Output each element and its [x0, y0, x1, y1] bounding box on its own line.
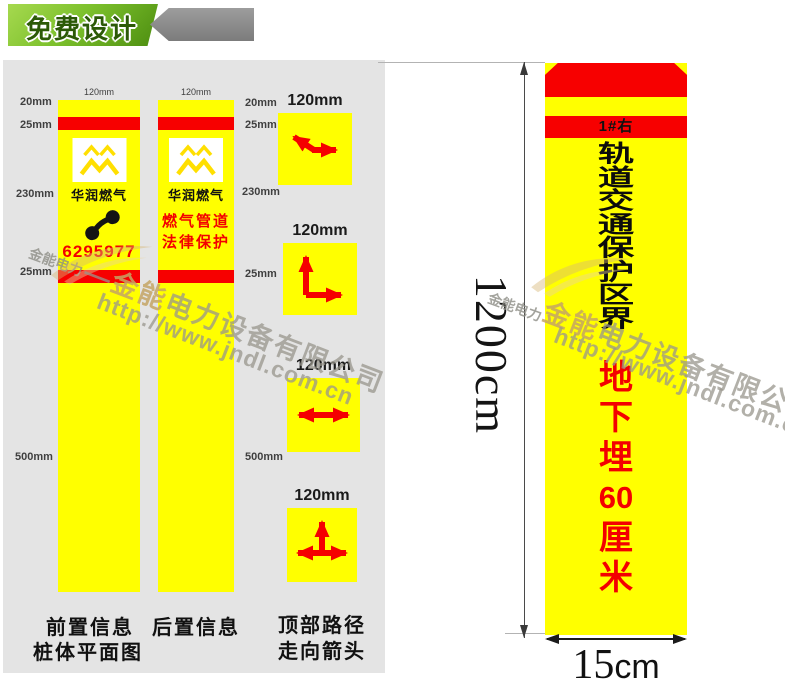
pillar-black-text: 轨 道 交 通 保 护 区 界: [545, 143, 687, 331]
back-post-diagram: 华润燃气 燃气管道 法律保护: [158, 100, 234, 592]
t-shape-arrow-icon: [287, 508, 357, 582]
dimension-arrow-down: [520, 625, 528, 638]
gas-logo: [169, 138, 223, 187]
arrow-tile-bend: [278, 113, 352, 185]
front-post-red-band-bottom: [58, 270, 140, 283]
width-number: 15: [572, 642, 614, 684]
back-post-red-line-1: 燃气管道: [158, 210, 234, 231]
pillar-width-label: 15cm: [545, 641, 687, 684]
dim-right-20mm: 20mm: [245, 97, 277, 109]
pillar-red-text: 地 下 埋 60 厘 米: [545, 358, 687, 598]
dim-right-500mm: 500mm: [245, 451, 283, 463]
dim-left-500mm: 500mm: [15, 451, 53, 463]
left-right-arrow-icon: [287, 378, 360, 452]
dim-right-25mm-top: 25mm: [245, 119, 277, 131]
bend-arrow-icon: [278, 113, 352, 185]
gas-logo: [72, 138, 127, 187]
dimension-arrow-up: [520, 62, 528, 75]
back-post-red-band-bottom: [158, 270, 234, 283]
front-post-width-label: 120mm: [58, 87, 140, 97]
ribbon-gray-chevron: [150, 8, 254, 41]
arrow-tile-left-right: [287, 378, 360, 452]
banner-title: 免费设计: [22, 9, 142, 46]
tile-1-label: 120mm: [278, 92, 352, 110]
dim-right-25mm-bottom: 25mm: [245, 268, 277, 280]
width-unit: cm: [614, 648, 659, 684]
dim-left-230mm: 230mm: [16, 188, 54, 200]
front-post-caption-2: 桩体平面图: [22, 636, 154, 665]
height-dimension-line: [524, 62, 525, 638]
arrow-tile-t-shape: [287, 508, 357, 582]
tile-3-label: 120mm: [287, 357, 360, 375]
pillar-height-label: 1200cm: [472, 245, 518, 465]
tiles-caption-1: 顶部路径: [262, 609, 382, 638]
width-dimension-line: [547, 638, 685, 640]
front-post-red-band-top: [58, 117, 140, 130]
back-post-width-label: 120mm: [158, 87, 234, 97]
arrow-tile-up-right: [283, 243, 357, 315]
dim-right-230mm: 230mm: [242, 186, 280, 198]
phone-icon: [80, 203, 120, 246]
tiles-caption-2: 走向箭头: [262, 635, 382, 664]
pillar-tag-stripe: 1#右: [545, 116, 687, 138]
up-right-arrow-icon: [283, 243, 357, 315]
tile-2-label: 120mm: [283, 222, 357, 240]
back-post-red-band-top: [158, 117, 234, 130]
back-post-brand-text: 华润燃气: [158, 185, 234, 204]
back-post-red-line-2: 法律保护: [158, 231, 234, 252]
dim-left-25mm-top: 25mm: [20, 119, 52, 131]
dim-left-20mm: 20mm: [20, 96, 52, 108]
front-post-diagram: 华润燃气 6295977: [58, 100, 140, 592]
pillar-red-cap: [545, 63, 687, 97]
design-proof-canvas: 免费设计 120mm 120mm 20mm 25mm 230mm 25mm 50…: [0, 0, 785, 684]
back-post-caption: 后置信息: [136, 611, 256, 640]
tile-4-label: 120mm: [287, 487, 357, 505]
front-post-phone-number: 6295977: [58, 242, 140, 262]
dim-left-25mm-bottom: 25mm: [20, 266, 52, 278]
front-post-brand-text: 华润燃气: [58, 185, 140, 204]
marker-pillar: 1#右 轨 道 交 通 保 护 区 界 地 下 埋 60 厘 米: [545, 63, 687, 635]
